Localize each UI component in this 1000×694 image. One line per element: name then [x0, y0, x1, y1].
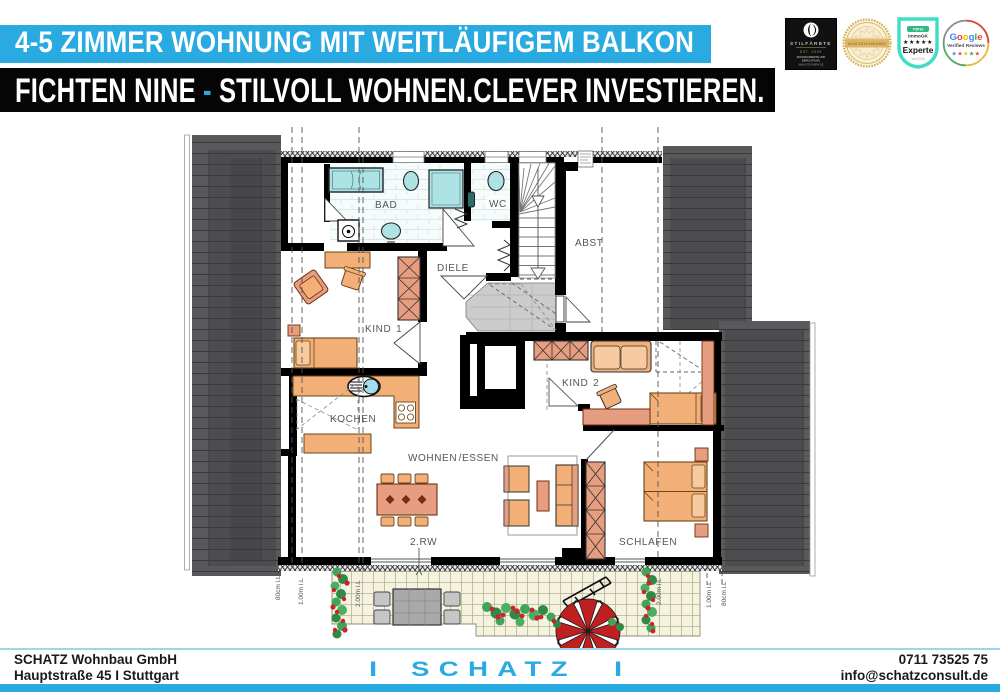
svg-text:80cm i.L: 80cm i.L	[275, 575, 282, 600]
svg-text:WC: WC	[489, 199, 507, 210]
svg-text:SCHLAFEN: SCHLAFEN	[619, 537, 677, 548]
svg-text:1.00m i.L: 1.00m i.L	[706, 581, 713, 608]
svg-text:2.00m i.L: 2.00m i.L	[656, 578, 663, 605]
svg-text:80cm i.L: 80cm i.L	[721, 581, 728, 606]
svg-text:1.00m i.L: 1.00m i.L	[298, 578, 305, 605]
svg-text:DIELE: DIELE	[437, 263, 469, 274]
svg-text:KOCHEN: KOCHEN	[330, 414, 376, 425]
svg-text:2.RW: 2.RW	[410, 537, 437, 548]
svg-text:BAD: BAD	[375, 200, 397, 211]
svg-text:ABST: ABST	[575, 238, 604, 249]
svg-text:2.00m i.L: 2.00m i.L	[355, 580, 362, 607]
svg-text:WOHNEN /ESSEN: WOHNEN /ESSEN	[408, 453, 499, 464]
svg-text:KIND 2: KIND 2	[562, 378, 599, 389]
svg-text:KIND 1: KIND 1	[365, 324, 402, 335]
